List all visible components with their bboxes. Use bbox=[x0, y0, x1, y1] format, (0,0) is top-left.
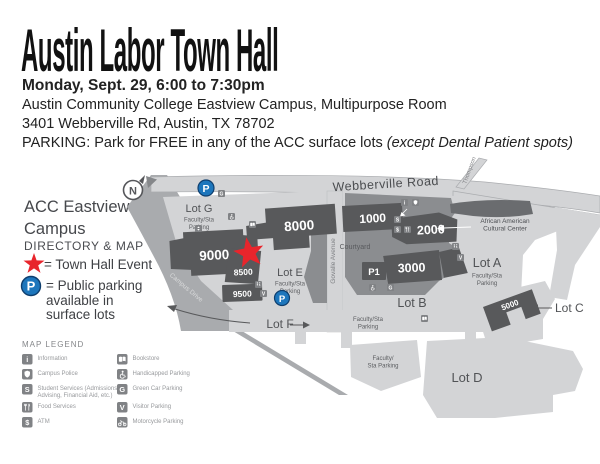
lot-f-label: Lot F bbox=[266, 317, 293, 331]
lot-c-label: Lot C bbox=[555, 301, 584, 315]
legend-item-food-services: Food Services bbox=[22, 402, 76, 413]
svg-text:$: $ bbox=[396, 227, 399, 233]
svg-text:8000: 8000 bbox=[284, 217, 315, 234]
visitor-parking-icon: V bbox=[260, 290, 267, 297]
page-title: Austin Labor Town Hall bbox=[21, 16, 278, 85]
student-services-icon: S bbox=[22, 384, 33, 395]
event-address: 3401 Webberville Rd, Austin, TX 78702 bbox=[22, 116, 275, 132]
handicapped-parking-icon bbox=[117, 369, 128, 380]
atm-icon: $ bbox=[394, 226, 401, 233]
svg-text:P: P bbox=[202, 183, 209, 195]
food-services-icon bbox=[404, 226, 411, 233]
cultural-center-label: African American Cultural Center bbox=[480, 218, 530, 233]
map-legend-title: MAP LEGEND bbox=[22, 340, 84, 349]
svg-text:Lot E: Lot E bbox=[277, 267, 303, 279]
legend-label: Motorcycle Parking bbox=[133, 417, 184, 426]
svg-text:Faculty/Sta: Faculty/Sta bbox=[275, 282, 306, 288]
svg-text:Faculty/Sta: Faculty/Sta bbox=[184, 218, 215, 224]
legend-label: Information bbox=[38, 354, 68, 363]
food-services-icon bbox=[22, 402, 33, 413]
motorcycle-parking-icon bbox=[117, 417, 128, 428]
legend-item-student-services: S Student Services (Admissions,Advising,… bbox=[22, 384, 119, 400]
parking-text: PARKING: Park for FREE in any of the ACC… bbox=[22, 135, 387, 151]
green-car-parking-icon: G bbox=[218, 190, 225, 197]
parking-info: PARKING: Park for FREE in any of the ACC… bbox=[22, 135, 573, 151]
legend-item-information: i Information bbox=[22, 354, 68, 365]
svg-text:Parking: Parking bbox=[358, 325, 378, 331]
legend-label: ATM bbox=[38, 417, 50, 426]
svg-text:3000: 3000 bbox=[397, 261, 425, 276]
lot-d-area bbox=[423, 337, 583, 418]
restroom-icon bbox=[255, 281, 262, 288]
svg-text:V: V bbox=[120, 403, 125, 412]
legend-label-line2: Advising, Financial Aid, etc.) bbox=[38, 391, 113, 399]
legend-label: Food Services bbox=[38, 402, 76, 411]
legend-label: Visitor Parking bbox=[133, 402, 172, 411]
svg-text:G: G bbox=[220, 191, 224, 197]
lot-b-label: Lot B bbox=[397, 296, 426, 310]
svg-text:Faculty/: Faculty/ bbox=[372, 356, 393, 362]
svg-text:9500: 9500 bbox=[233, 288, 253, 299]
svg-text:P1: P1 bbox=[368, 267, 380, 278]
bookstore-icon bbox=[117, 354, 128, 365]
legend-item-atm: $ ATM bbox=[22, 417, 50, 428]
public-parking-icon: P bbox=[20, 275, 42, 297]
svg-text:Lot A: Lot A bbox=[473, 256, 502, 270]
svg-text:P: P bbox=[279, 294, 286, 305]
svg-text:$: $ bbox=[25, 418, 29, 427]
svg-text:8500: 8500 bbox=[234, 266, 254, 277]
svg-text:Lot G: Lot G bbox=[186, 203, 213, 215]
information-icon: i bbox=[22, 354, 33, 365]
cultural-center-grounds bbox=[450, 200, 533, 217]
svg-text:G: G bbox=[119, 385, 125, 394]
legend-item-campus-police: Campus Police bbox=[22, 369, 78, 380]
svg-text:Cultural Center: Cultural Center bbox=[483, 226, 528, 233]
svg-text:G: G bbox=[389, 285, 393, 291]
legend-item-bookstore: Bookstore bbox=[117, 354, 160, 365]
information-icon: i bbox=[401, 199, 408, 206]
atm-icon: $ bbox=[22, 417, 33, 428]
svg-text:Faculty/Sta: Faculty/Sta bbox=[472, 274, 503, 280]
legend-item-motorcycle-parking: Motorcycle Parking bbox=[117, 417, 184, 428]
parking-note: (except Dental Patient spots) bbox=[387, 135, 573, 151]
svg-text:P: P bbox=[27, 279, 36, 294]
visitor-parking-icon: V bbox=[117, 402, 128, 413]
building-p1: P1 bbox=[362, 262, 386, 280]
handicapped-parking-icon bbox=[369, 284, 376, 291]
courtyard-label: Courtyard bbox=[340, 244, 371, 251]
green-car-parking-icon: G bbox=[387, 284, 394, 291]
svg-text:N: N bbox=[129, 186, 137, 198]
handicapped-parking-icon bbox=[228, 213, 235, 220]
public-parking-marker: P bbox=[275, 291, 290, 306]
svg-text:9000: 9000 bbox=[199, 247, 230, 264]
elevator-icon bbox=[195, 225, 202, 232]
svg-text:1000: 1000 bbox=[359, 211, 387, 226]
event-location: Austin Community College Eastview Campus… bbox=[22, 97, 447, 113]
legend-label: Student Services (Admissions,Advising, F… bbox=[38, 384, 119, 400]
legend-item-handicapped-parking: Handicapped Parking bbox=[117, 369, 190, 380]
lot-d-label: Lot D bbox=[451, 370, 482, 385]
campus-name-line2: Campus bbox=[24, 220, 85, 239]
map-legend: MAP LEGEND i Information Campus Police S… bbox=[22, 340, 302, 455]
restroom-icon bbox=[452, 243, 459, 250]
govalle-avenue-label: Govalle Avenue bbox=[330, 238, 337, 284]
legend-label: Bookstore bbox=[133, 354, 160, 363]
campus-police-icon bbox=[22, 369, 33, 380]
svg-text:S: S bbox=[25, 385, 30, 394]
flyer: Austin Labor Town Hall Monday, Sept. 29,… bbox=[0, 0, 600, 464]
campus-police-icon bbox=[412, 199, 419, 206]
svg-text:Parking: Parking bbox=[477, 281, 497, 287]
svg-text:i: i bbox=[26, 355, 28, 364]
student-services-icon: S bbox=[394, 216, 401, 223]
visitor-parking-icon: V bbox=[457, 254, 464, 261]
legend-label: Green Car Parking bbox=[133, 384, 183, 393]
svg-text:African American: African American bbox=[480, 218, 530, 225]
event-datetime: Monday, Sept. 29, 6:00 to 7:30pm bbox=[22, 77, 265, 95]
bookstore-icon bbox=[421, 315, 428, 322]
svg-text:Sta Parking: Sta Parking bbox=[367, 364, 398, 370]
public-parking-marker: P bbox=[198, 180, 214, 196]
green-car-parking-icon: G bbox=[117, 384, 128, 395]
legend-item-green-car-parking: G Green Car Parking bbox=[117, 384, 183, 395]
legend-label: Campus Police bbox=[38, 369, 78, 378]
legend-label: Handicapped Parking bbox=[133, 369, 190, 378]
svg-text:Faculty/Sta: Faculty/Sta bbox=[353, 317, 384, 323]
bookstore-icon bbox=[249, 221, 256, 228]
legend-item-visitor-parking: V Visitor Parking bbox=[117, 402, 171, 413]
